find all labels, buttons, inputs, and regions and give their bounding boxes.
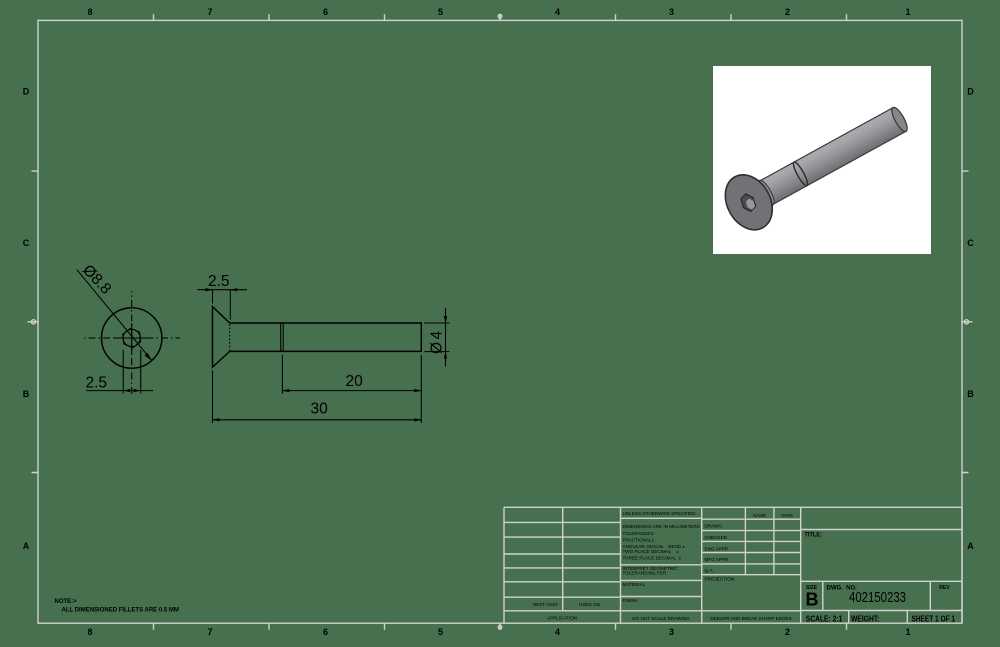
svg-text:DIMENSIONS ARE IN MILLIMETERS: DIMENSIONS ARE IN MILLIMETERS	[623, 524, 700, 529]
svg-text:6: 6	[323, 627, 328, 637]
svg-text:SCALE: 2:1: SCALE: 2:1	[806, 614, 843, 623]
svg-text:ENG APPR.: ENG APPR.	[705, 546, 730, 551]
svg-text:MFG APPR.: MFG APPR.	[705, 557, 730, 562]
svg-text:C: C	[967, 238, 974, 248]
svg-text:D: D	[23, 87, 30, 97]
svg-text:REV: REV	[939, 585, 950, 591]
svg-text:TITLE:: TITLE:	[805, 532, 823, 539]
svg-text:DRAWN: DRAWN	[705, 524, 722, 529]
svg-text:DATE: DATE	[781, 513, 793, 518]
svg-text:DO NOT SCALE DRAWING: DO NOT SCALE DRAWING	[632, 616, 690, 621]
svg-text:SHEET 1 OF 1: SHEET 1 OF 1	[912, 614, 956, 623]
svg-text:DEBURR AND BREAK SHARP EDGES: DEBURR AND BREAK SHARP EDGES	[710, 616, 791, 621]
svg-text:7: 7	[207, 627, 212, 637]
svg-text:FRACTIONAL±: FRACTIONAL±	[623, 537, 655, 542]
svg-text:C: C	[23, 238, 30, 248]
svg-text:NOTE:>: NOTE:>	[55, 599, 78, 605]
svg-text:2.5: 2.5	[86, 375, 108, 392]
svg-text:D: D	[967, 87, 974, 97]
svg-text:1: 1	[905, 7, 910, 17]
svg-text:4: 4	[555, 627, 560, 637]
svg-text:APPLICATION: APPLICATION	[547, 616, 577, 621]
svg-text:7: 7	[207, 7, 212, 17]
svg-text:USED ON: USED ON	[579, 602, 600, 607]
svg-text:A: A	[23, 541, 30, 551]
svg-text:A: A	[967, 541, 974, 551]
svg-text:UNLESS OTHERWISE SPECIFIED:: UNLESS OTHERWISE SPECIFIED:	[623, 511, 697, 516]
svg-text:B: B	[23, 389, 30, 399]
svg-text:FINISH: FINISH	[623, 598, 638, 603]
svg-text:WEIGHT:: WEIGHT:	[851, 614, 880, 623]
svg-text:ALL DIMENSIONED FILLETS ARE 0.: ALL DIMENSIONED FILLETS ARE 0.5 MM	[62, 608, 179, 614]
svg-text:2: 2	[785, 627, 790, 637]
svg-text:TWO PLACE DECIMAL ±: TWO PLACE DECIMAL ±	[623, 549, 680, 554]
svg-text:2: 2	[785, 7, 790, 17]
svg-text:NAME: NAME	[753, 513, 766, 518]
svg-text:6: 6	[323, 7, 328, 17]
svg-text:MATERIAL: MATERIAL	[623, 582, 646, 587]
svg-text:5: 5	[438, 7, 443, 17]
svg-text:Q.A.: Q.A.	[705, 568, 714, 573]
svg-text:NEXT ASSY: NEXT ASSY	[533, 602, 558, 607]
svg-text:3: 3	[669, 7, 674, 17]
svg-text:20: 20	[346, 373, 364, 390]
svg-text:8: 8	[87, 7, 92, 17]
svg-text:THREE PLACE DECIMAL ±: THREE PLACE DECIMAL ±	[623, 556, 682, 561]
svg-text:Ø4: Ø4	[429, 328, 446, 354]
svg-text:TOLERANCING PER:: TOLERANCING PER:	[623, 571, 668, 576]
svg-text:B: B	[806, 590, 819, 610]
svg-text:5: 5	[438, 627, 443, 637]
svg-text:402150233: 402150233	[849, 590, 906, 606]
svg-text:TOLERANCES:: TOLERANCES:	[623, 531, 655, 536]
svg-text:30: 30	[311, 401, 329, 418]
svg-text:B: B	[967, 389, 974, 399]
svg-text:4: 4	[555, 7, 560, 17]
svg-text:PROJECTION:: PROJECTION:	[705, 577, 736, 582]
svg-text:1: 1	[905, 627, 910, 637]
svg-text:2.5: 2.5	[208, 273, 230, 290]
svg-text:CHECKED: CHECKED	[705, 535, 728, 540]
svg-text:3: 3	[669, 627, 674, 637]
svg-text:8: 8	[87, 627, 92, 637]
